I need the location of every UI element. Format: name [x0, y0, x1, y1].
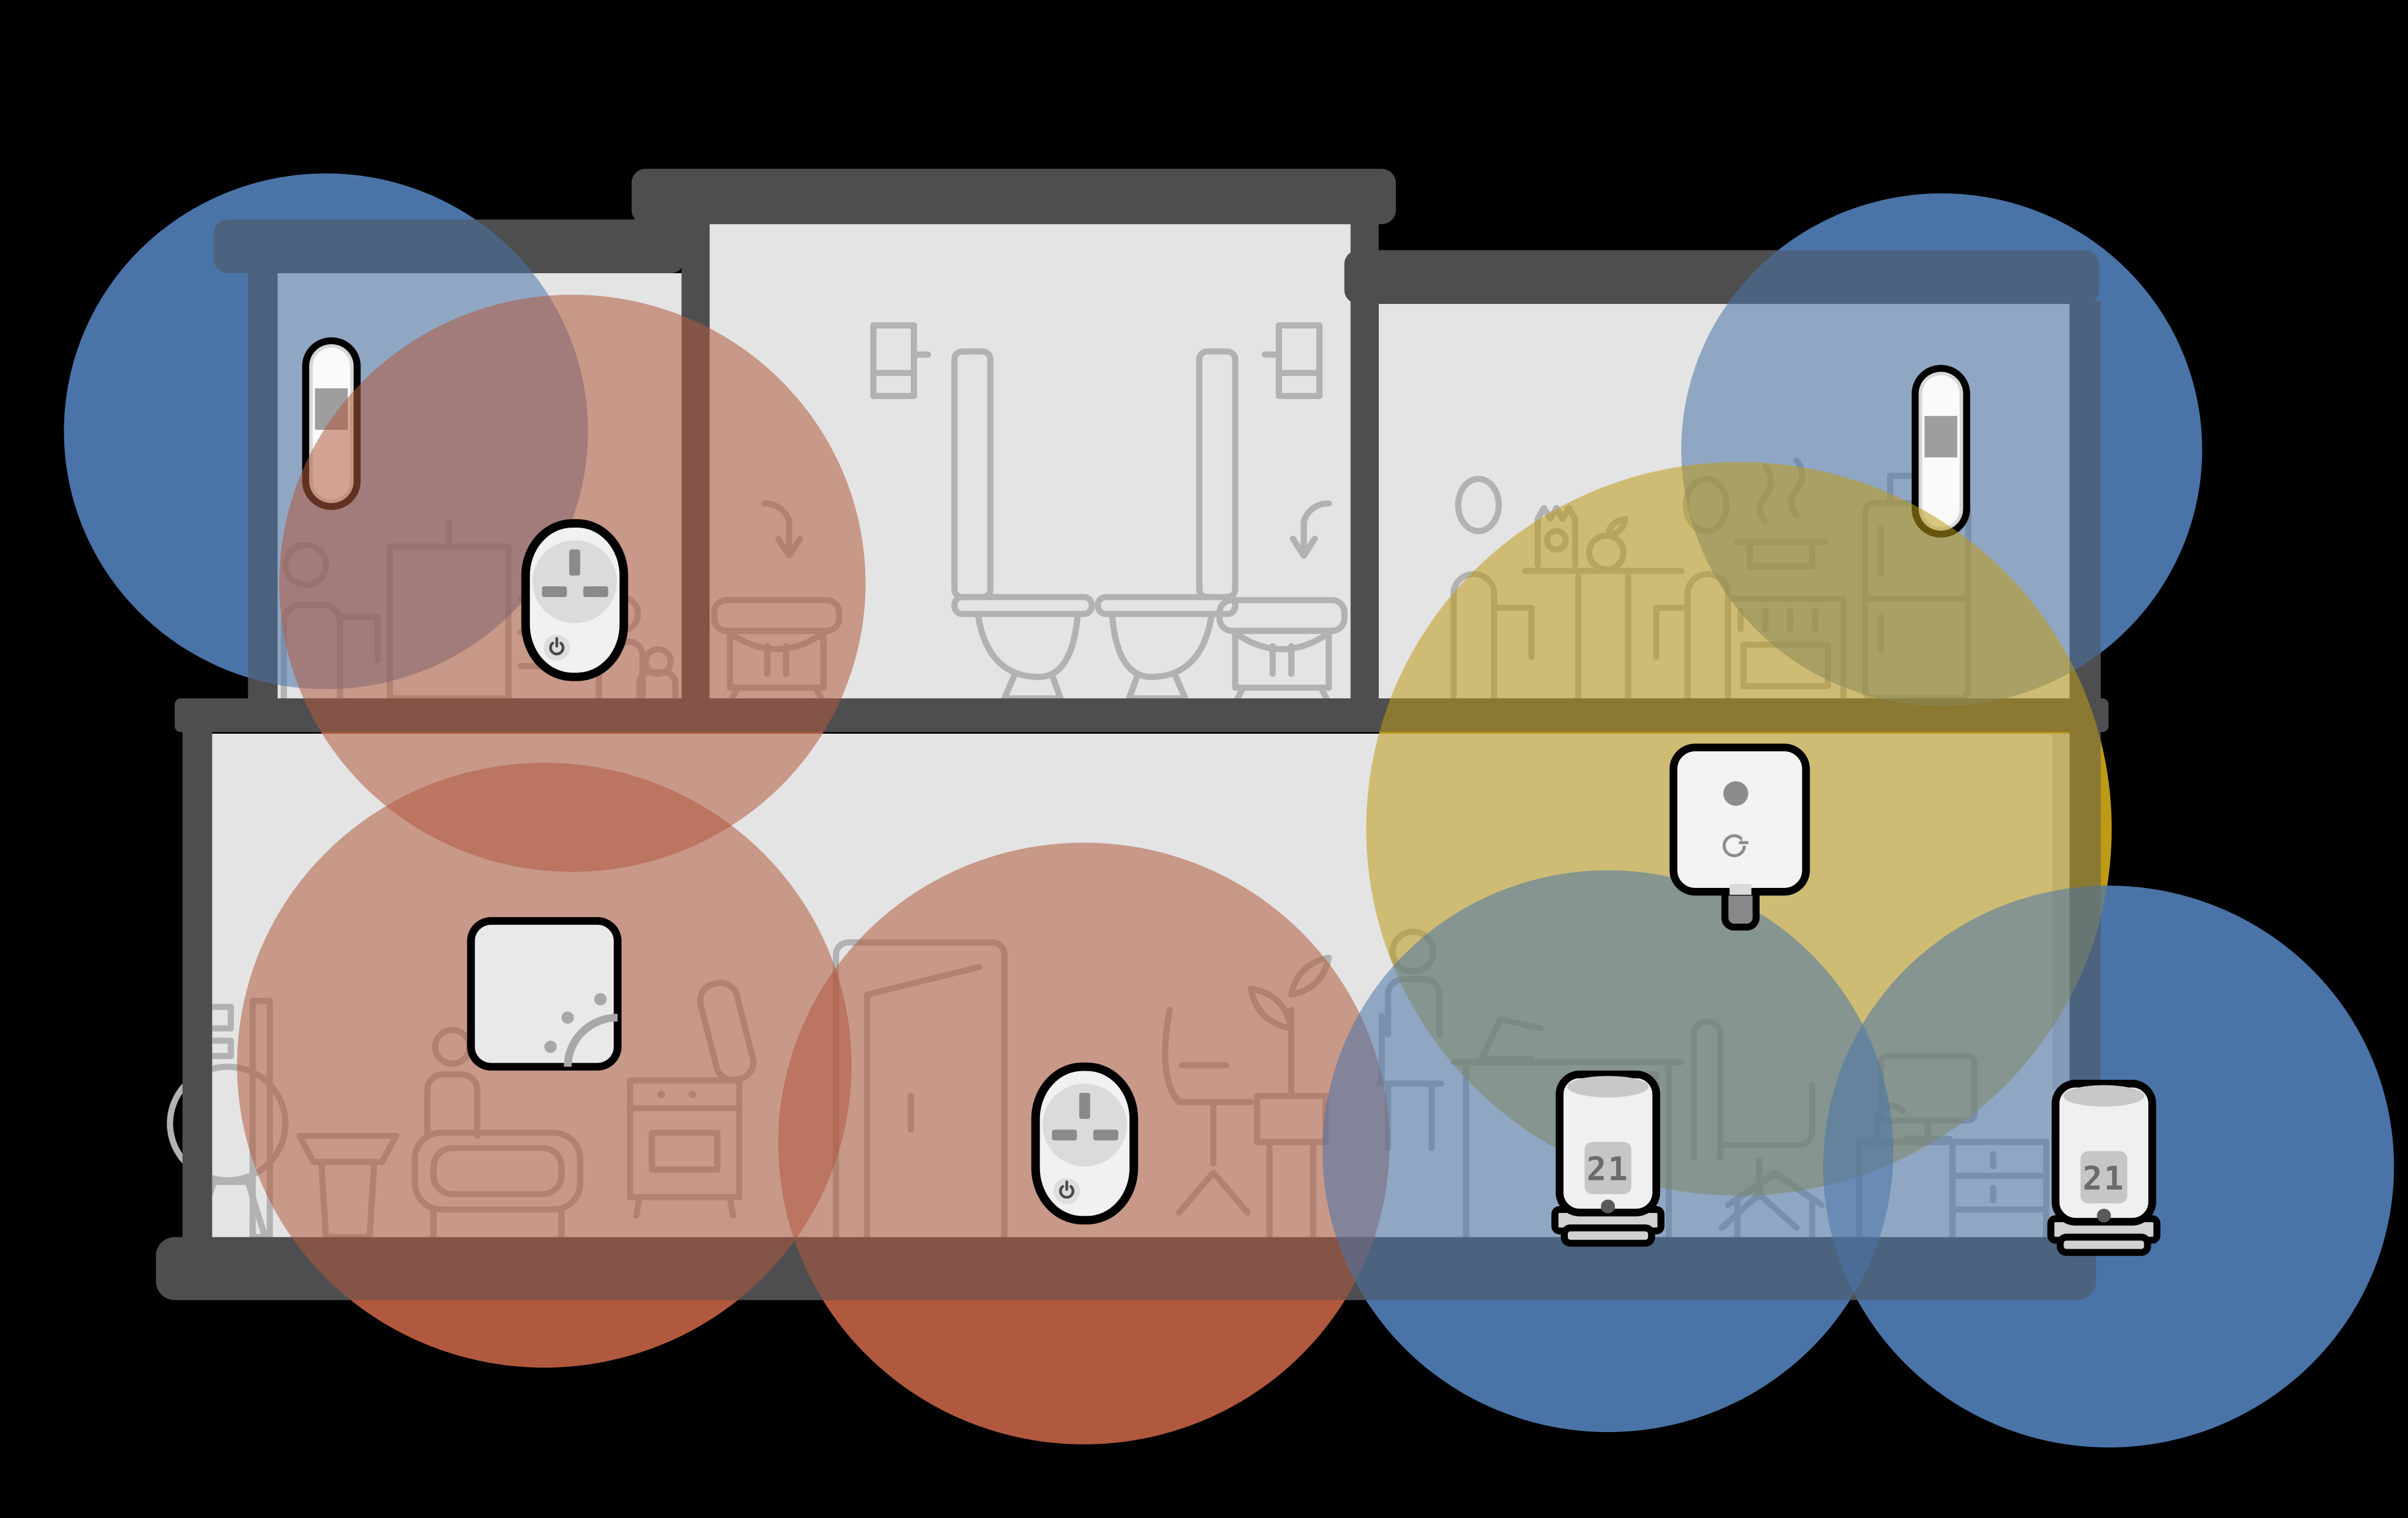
thermostat-cap	[2064, 1085, 2144, 1107]
thermostat-dot	[2097, 1209, 2111, 1223]
thermostat-cap	[1567, 1076, 1648, 1097]
smart-plug-bedroom	[525, 524, 624, 677]
sensor-magnet-band	[1925, 416, 1958, 458]
socket-pin-left	[1052, 1130, 1077, 1141]
socket-pin-left	[542, 586, 567, 597]
signal-repeater	[471, 921, 618, 1067]
socket-pin-top	[1079, 1093, 1090, 1119]
smart-plug-hall	[1035, 1067, 1134, 1220]
thermostat-display-value: 21	[2082, 1160, 2125, 1197]
socket-pin-right	[1093, 1130, 1118, 1141]
repeater-dot-3	[544, 1040, 557, 1053]
wall-left-lower	[183, 731, 212, 1240]
status-led	[1723, 781, 1748, 806]
roof-middle	[632, 169, 1396, 224]
gateway-antenna-joint	[1729, 884, 1751, 895]
door-sensor-kitchen	[1915, 368, 1966, 534]
wall-bathroom-right	[1351, 215, 1379, 698]
illustration-stage: 21 21	[0, 0, 2408, 1518]
radiator-thermostat-right: 21	[2051, 1084, 2157, 1253]
gateway-body	[1674, 747, 1806, 891]
thermostat-display-value: 21	[1587, 1151, 1629, 1188]
socket-pin-right	[583, 586, 609, 597]
repeater-body	[471, 921, 618, 1067]
radiator-thermostat-left: 21	[1555, 1075, 1661, 1244]
thermostat-stub	[1564, 1228, 1651, 1243]
illustration-canvas: 21 21	[0, 0, 2408, 1518]
repeater-dot-2	[561, 1011, 574, 1024]
socket-pin-top	[569, 549, 580, 575]
thermostat-dot	[1601, 1199, 1615, 1213]
thermostat-stub	[2060, 1237, 2147, 1253]
repeater-dot-1	[594, 993, 607, 1006]
